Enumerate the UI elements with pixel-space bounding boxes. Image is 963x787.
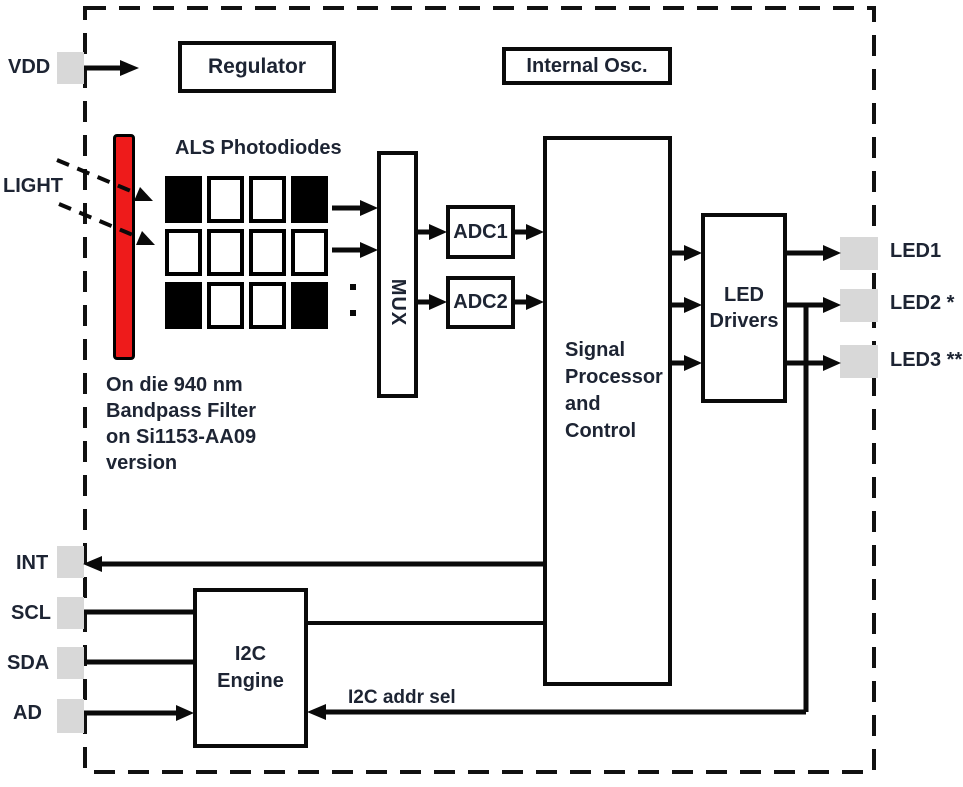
vdd-pad: [57, 52, 84, 84]
photodiode-grid: [165, 176, 328, 329]
scl-pad: [57, 597, 84, 629]
i2c-addr-sel-arrowhead-icon: [307, 704, 326, 720]
adc2-to-sp-arrowhead-icon: [526, 294, 544, 310]
sda-pad: [57, 647, 84, 679]
sp-to-leddrv-arrowhead-icon: [684, 355, 702, 371]
signal-processor-label: Signal Processor and Control: [565, 337, 663, 445]
pd-to-mux-arrowhead-icon: [360, 242, 378, 258]
photodiode-cell-black: [291, 282, 328, 329]
led1-pin-label: LED1: [890, 240, 941, 263]
vdd-pin-label: VDD: [8, 56, 50, 79]
photodiode-cell-white: [207, 229, 244, 276]
mux-to-adc2-arrowhead-icon: [429, 294, 447, 310]
ad-arrowhead-icon: [176, 705, 194, 721]
i2c-addr-sel-label: I2C addr sel: [348, 687, 456, 709]
ad-pin-label: AD: [13, 702, 42, 725]
signal-processor-block: Signal Processor and Control: [543, 136, 672, 686]
leddrv-to-led1-arrowhead-icon: [823, 245, 841, 261]
photodiode-cell-black: [165, 282, 202, 329]
photodiode-cell-white: [291, 229, 328, 276]
light-arrowhead-icon: [134, 187, 153, 201]
adc1-to-sp-arrowhead-icon: [526, 224, 544, 240]
i2c-engine-label: I2C Engine: [217, 641, 284, 695]
int-pin-label: INT: [16, 552, 48, 575]
als-photodiodes-title: ALS Photodiodes: [175, 137, 342, 160]
photodiode-cell-white: [249, 282, 286, 329]
led-drivers-block: LED Drivers: [701, 213, 787, 403]
photodiode-cell-white: [207, 176, 244, 223]
mux-label: MUX: [386, 278, 409, 325]
ellipsis-dot: [350, 284, 356, 290]
adc2-block: ADC2: [446, 276, 515, 329]
led3-pad: [840, 345, 878, 378]
internal-osc-block: Internal Osc.: [502, 47, 672, 85]
internal-osc-label: Internal Osc.: [526, 55, 647, 78]
regulator-block: Regulator: [178, 41, 336, 93]
photodiode-cell-white: [249, 176, 286, 223]
photodiode-cell-white: [165, 229, 202, 276]
photodiode-cell-black: [291, 176, 328, 223]
led3-pin-label: LED3 **: [890, 349, 962, 372]
vdd-arrowhead-icon: [120, 60, 139, 76]
leddrv-to-led2-arrowhead-icon: [823, 297, 841, 313]
adc1-block: ADC1: [446, 205, 515, 259]
ad-pad: [57, 699, 84, 733]
pd-to-mux-arrowhead-icon: [360, 200, 378, 216]
i2c-engine-block: I2C Engine: [193, 588, 308, 748]
mux-block: MUX: [377, 151, 418, 398]
leddrv-to-led3-arrowhead-icon: [823, 355, 841, 371]
adc1-label: ADC1: [453, 221, 507, 244]
mux-to-adc1-arrowhead-icon: [429, 224, 447, 240]
bandpass-filter-bar: [113, 134, 135, 360]
photodiode-cell-black: [165, 176, 202, 223]
scl-pin-label: SCL: [11, 602, 51, 625]
filter-note: On die 940 nm Bandpass Filter on Si1153-…: [106, 372, 256, 476]
int-pad: [57, 546, 84, 578]
sp-to-leddrv-arrowhead-icon: [684, 297, 702, 313]
led-drivers-label: LED Drivers: [710, 282, 779, 334]
ellipsis-dot: [350, 310, 356, 316]
led2-pin-label: LED2 *: [890, 292, 954, 315]
sp-to-leddrv-arrowhead-icon: [684, 245, 702, 261]
light-arrowhead-icon: [136, 231, 155, 245]
chip-block-diagram: VDD LIGHT INT SCL SDA AD LED1 LED2 * LED…: [0, 0, 963, 787]
photodiode-cell-white: [207, 282, 244, 329]
int-arrowhead-icon: [83, 556, 102, 572]
led1-pad: [840, 237, 878, 270]
light-pin-label: LIGHT: [3, 175, 63, 198]
photodiode-cell-white: [249, 229, 286, 276]
led2-pad: [840, 289, 878, 322]
sda-pin-label: SDA: [7, 652, 49, 675]
adc2-label: ADC2: [453, 291, 507, 314]
regulator-label: Regulator: [208, 55, 306, 79]
